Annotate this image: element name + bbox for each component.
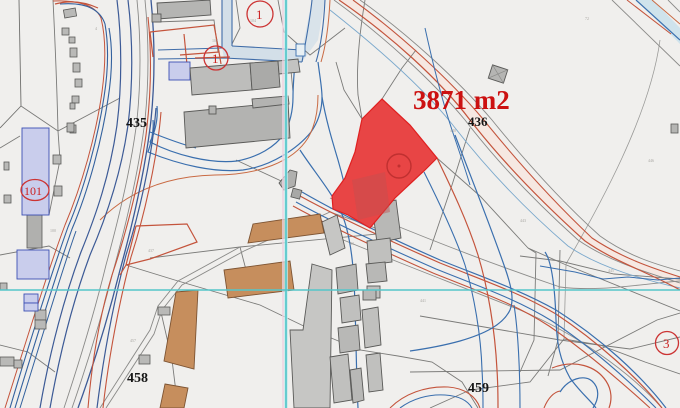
- svg-text:72: 72: [585, 16, 589, 21]
- svg-text:3871 m2: 3871 m2: [413, 85, 510, 115]
- svg-text:1: 1: [212, 51, 219, 66]
- svg-text:103: 103: [212, 38, 218, 43]
- svg-text:3: 3: [663, 336, 670, 351]
- svg-text:436: 436: [468, 114, 488, 129]
- svg-text:445: 445: [608, 268, 614, 273]
- svg-text:441: 441: [420, 298, 426, 303]
- svg-text:440: 440: [450, 128, 456, 133]
- svg-text:443: 443: [520, 218, 526, 223]
- svg-text:459: 459: [468, 381, 489, 396]
- svg-text:100: 100: [50, 228, 56, 233]
- svg-text:435: 435: [126, 116, 147, 131]
- svg-text:4: 4: [95, 26, 97, 31]
- svg-text:1: 1: [256, 7, 263, 22]
- svg-text:458: 458: [127, 371, 148, 386]
- svg-text:101: 101: [24, 184, 42, 198]
- svg-text:457: 457: [130, 338, 136, 343]
- svg-text:104: 104: [250, 18, 256, 23]
- svg-text:437: 437: [148, 248, 154, 253]
- svg-text:446: 446: [648, 158, 654, 163]
- svg-text:33: 33: [350, 241, 354, 246]
